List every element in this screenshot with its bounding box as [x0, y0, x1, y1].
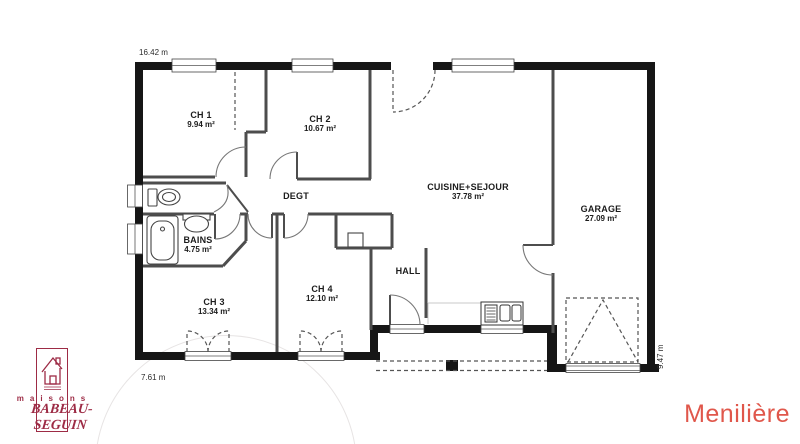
water-heater-icon [348, 233, 363, 247]
garage-door-opening [566, 364, 640, 373]
garage-door-panel [566, 298, 638, 362]
door-leaves [215, 147, 553, 325]
dimension-top: 16.42 m [139, 48, 168, 57]
floorplan-page: 16.42 m 7.61 m 9.47 m CH 1 9.94 m² CH 2 … [0, 0, 800, 444]
window-frame-lines [135, 66, 640, 371]
house-logo-icon [38, 352, 66, 392]
terrace-post [446, 360, 458, 371]
kitchen-sink-icon [481, 302, 523, 325]
dimension-right: 9.47 m [656, 345, 665, 369]
plan-title: Menilière [630, 400, 790, 429]
kitchen-counter-line [428, 303, 481, 324]
entrance-opening [391, 61, 433, 71]
toilet-icon [148, 189, 180, 206]
bathroom-sink-icon [183, 214, 210, 232]
dimension-bottom-left: 7.61 m [141, 373, 165, 382]
door-arcs [214, 147, 553, 325]
bathtub-icon [147, 216, 178, 264]
floorplan-drawing [0, 0, 800, 444]
brand-name: BABEAU-SEGUIN [4, 402, 117, 434]
